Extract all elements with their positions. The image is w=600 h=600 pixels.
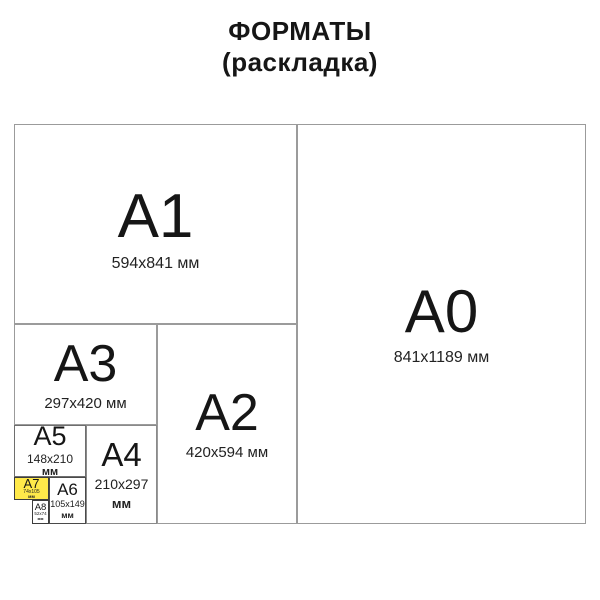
format-label-a5: A5 bbox=[33, 423, 66, 450]
format-dims-a1: 594x841 мм bbox=[112, 255, 200, 273]
format-box-a2: A2 420x594 мм bbox=[157, 324, 297, 524]
format-dims-a2: 420x594 мм bbox=[186, 444, 268, 461]
format-box-a3: A3 297x420 мм bbox=[14, 324, 157, 425]
format-dims-unit-a6: мм bbox=[61, 510, 74, 520]
format-box-a7: A7 74x105 мм bbox=[14, 477, 49, 500]
format-label-a0: A0 bbox=[405, 282, 478, 342]
format-box-a4: A4 210x297 мм bbox=[86, 425, 157, 524]
format-box-a5: A5 148x210 мм bbox=[14, 425, 86, 477]
format-box-a6: A6 105x149 мм bbox=[49, 477, 86, 524]
format-box-a0: A0 841x1189 мм bbox=[297, 124, 586, 524]
format-box-a1: A1 594x841 мм bbox=[14, 124, 297, 324]
paper-formats-diagram: A1 594x841 мм A0 841x1189 мм A3 297x420 … bbox=[14, 124, 586, 524]
format-dims-a4: 210x297 bbox=[95, 476, 149, 493]
title-line-2: (раскладка) bbox=[0, 47, 600, 78]
format-label-a7: A7 bbox=[24, 477, 40, 490]
title-line-1: ФОРМАТЫ bbox=[0, 16, 600, 47]
format-dims-unit-a8: мм bbox=[38, 517, 44, 521]
format-dims-a0: 841x1189 мм bbox=[394, 349, 490, 367]
format-dims-a3: 297x420 мм bbox=[44, 395, 126, 412]
format-dims-unit-a4: мм bbox=[112, 497, 131, 511]
format-label-a3: A3 bbox=[54, 338, 118, 390]
format-label-a4: A4 bbox=[101, 438, 141, 471]
format-label-a1: A1 bbox=[118, 176, 194, 248]
format-dims-a5: 148x210 bbox=[27, 452, 73, 466]
format-dims-a6: 105x149 bbox=[50, 499, 85, 509]
format-label-a6: A6 bbox=[57, 481, 78, 498]
format-label-a2: A2 bbox=[195, 387, 259, 439]
format-dims-unit-a7: мм bbox=[28, 495, 35, 500]
page: ФОРМАТЫ (раскладка) A1 594x841 мм A0 841… bbox=[0, 0, 600, 600]
page-title: ФОРМАТЫ (раскладка) bbox=[0, 16, 600, 78]
format-box-a8: A8 52x74 мм bbox=[32, 500, 49, 524]
